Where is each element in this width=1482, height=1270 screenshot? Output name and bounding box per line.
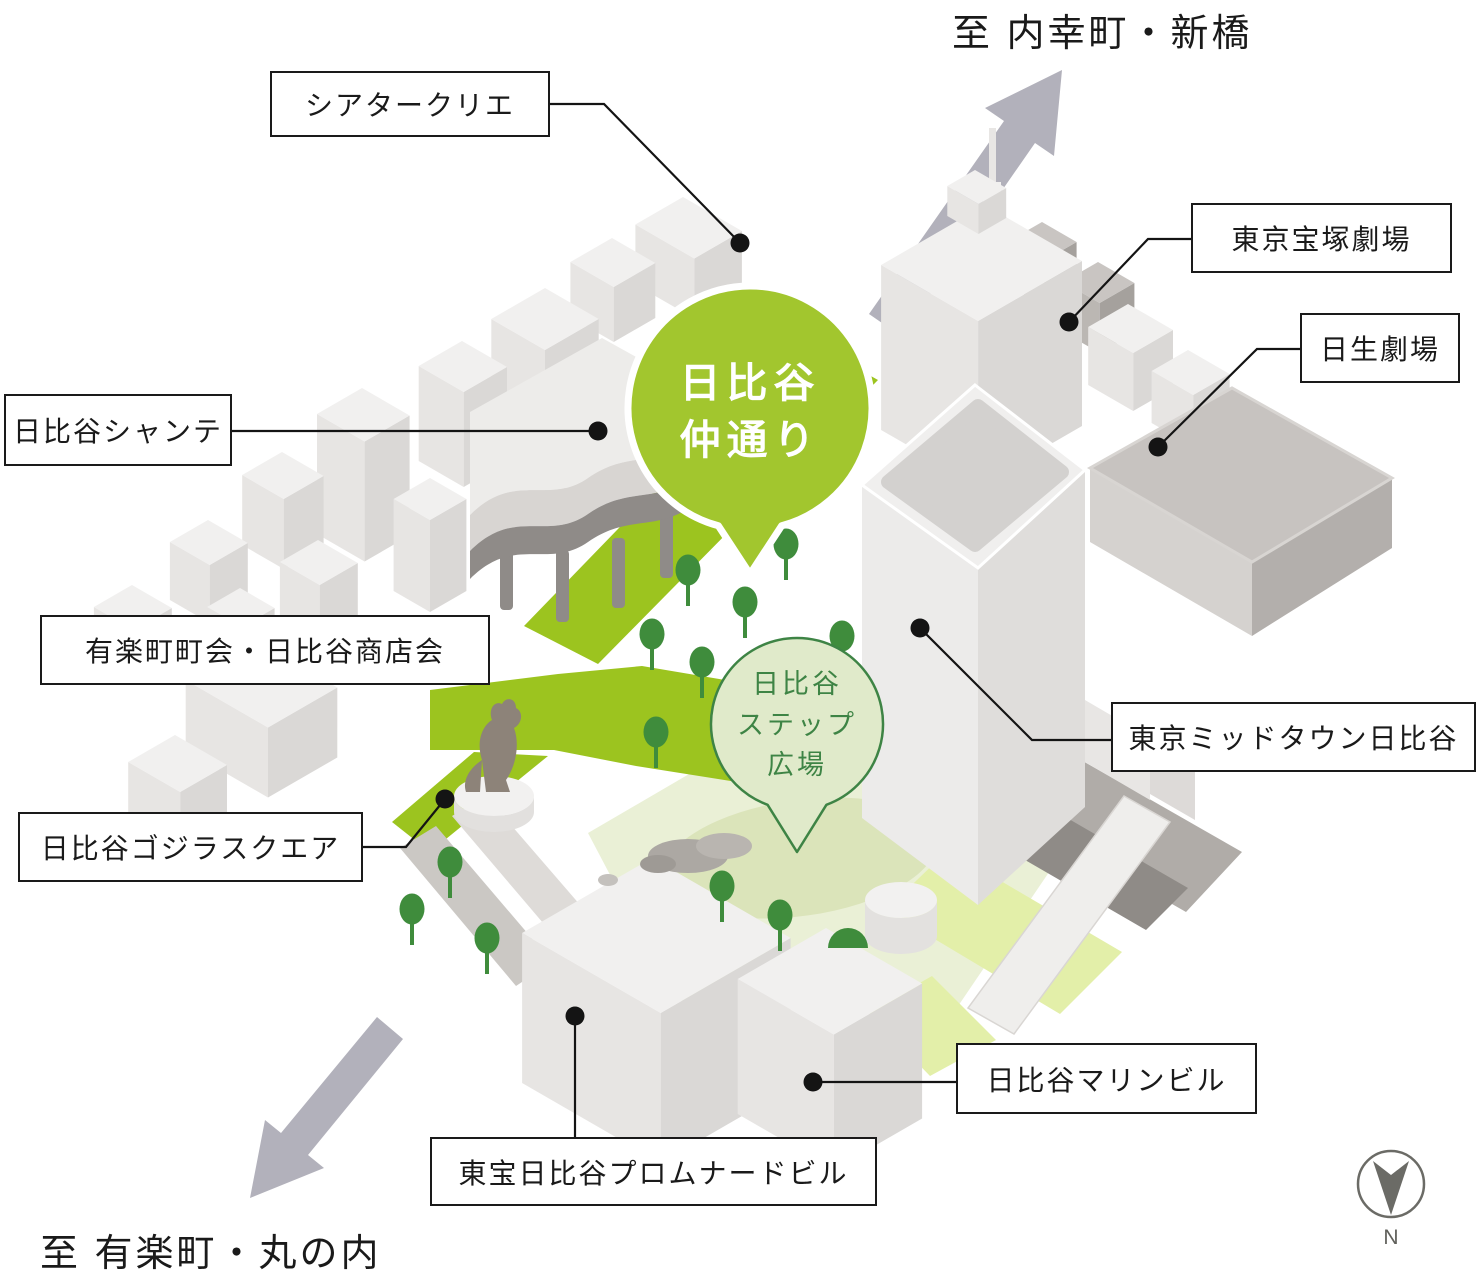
- label-marine-building: 日比谷マリンビル: [956, 1043, 1257, 1114]
- tree-icon: [644, 717, 669, 748]
- label-hibiya-chanter: 日比谷シャンテ: [4, 394, 232, 466]
- nissay-building: [1090, 388, 1392, 636]
- tree-icon: [690, 647, 715, 678]
- label-theatre-creation: シアタークリエ: [270, 71, 550, 137]
- label-godzilla-square: 日比谷ゴジラスクエア: [18, 812, 363, 882]
- compass-north-label: N: [1377, 1226, 1405, 1250]
- tree-icon: [768, 900, 793, 931]
- direction-north-text: 至 内幸町・新橋: [952, 2, 1253, 57]
- hibiya-area-map: シアタークリエ 東京宝塚劇場 日生劇場 日比谷シャンテ 有楽町町会・日比谷商店会…: [0, 0, 1482, 1270]
- tree-icon: [438, 847, 463, 878]
- label-nissay-theatre: 日生劇場: [1300, 313, 1460, 383]
- tree-icon: [475, 923, 500, 954]
- direction-south-text: 至 有楽町・丸の内: [40, 1222, 382, 1270]
- tree-icon: [676, 555, 701, 586]
- south-direction-arrow: [250, 1017, 403, 1198]
- label-takarazuka-theater: 東京宝塚劇場: [1191, 203, 1452, 273]
- tree-icon: [640, 619, 665, 650]
- label-yurakucho-chokai: 有楽町町会・日比谷商店会: [40, 615, 490, 685]
- tree-icon: [733, 587, 758, 618]
- tree-icon: [400, 894, 425, 925]
- tree-icon: [710, 871, 735, 902]
- compass-icon: [1358, 1151, 1424, 1217]
- label-tokyo-midtown-hibiya: 東京ミッドタウン日比谷: [1111, 702, 1476, 772]
- label-promenade-building: 東宝日比谷プロムナードビル: [430, 1137, 877, 1206]
- plaza-cylinder: [865, 882, 937, 954]
